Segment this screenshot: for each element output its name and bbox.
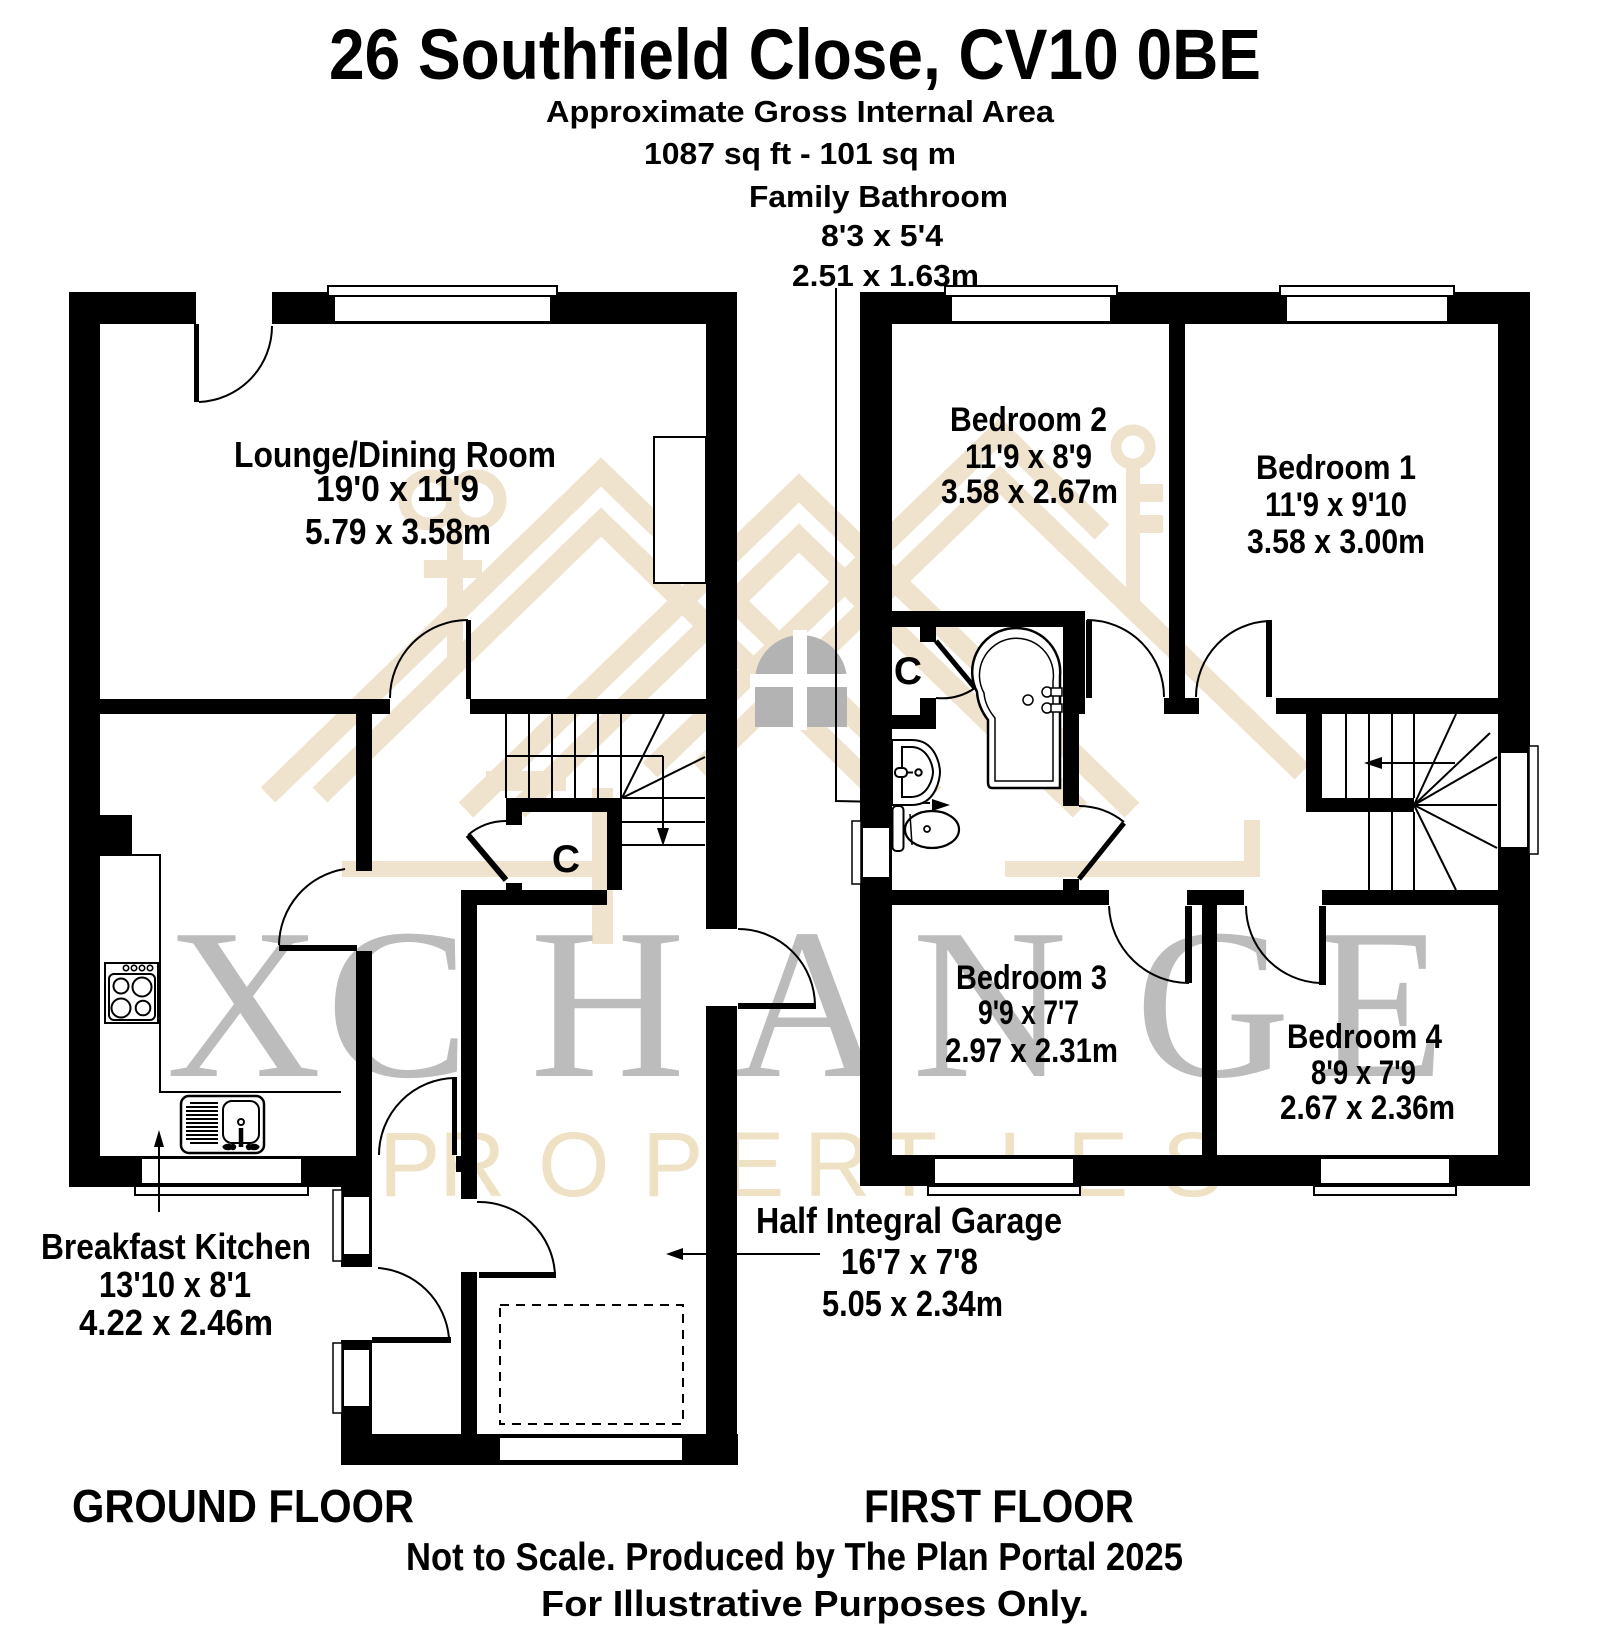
svg-text:H: H (530, 884, 685, 1123)
svg-text:2.51 x 1.63m: 2.51 x 1.63m (792, 258, 979, 293)
svg-text:GROUND FLOOR: GROUND FLOOR (72, 1480, 414, 1532)
svg-text:3.58 x 3.00m: 3.58 x 3.00m (1247, 523, 1425, 561)
svg-text:8'9 x 7'9: 8'9 x 7'9 (1311, 1054, 1416, 1092)
svg-text:19'0 x 11'9: 19'0 x 11'9 (316, 468, 479, 509)
svg-text:4.22 x 2.46m: 4.22 x 2.46m (79, 1302, 273, 1343)
svg-text:Half Integral Garage: Half Integral Garage (756, 1200, 1062, 1241)
svg-text:Bedroom 1: Bedroom 1 (1256, 449, 1416, 487)
svg-text:13'10 x 8'1: 13'10 x 8'1 (99, 1264, 251, 1305)
svg-text:X: X (166, 884, 321, 1123)
svg-text:Breakfast Kitchen: Breakfast Kitchen (41, 1226, 311, 1267)
svg-text:C: C (326, 884, 469, 1123)
svg-text:1087 sq ft - 101 sq m: 1087 sq ft - 101 sq m (644, 136, 956, 171)
svg-text:26 Southfield Close, CV10 0BE: 26 Southfield Close, CV10 0BE (329, 16, 1261, 95)
svg-text:Bedroom 2: Bedroom 2 (950, 401, 1107, 439)
svg-text:11'9 x 9'10: 11'9 x 9'10 (1265, 486, 1407, 524)
svg-text:Not to Scale. Produced by The: Not to Scale. Produced by The Plan Porta… (406, 1536, 1183, 1579)
svg-text:Approximate Gross Internal Are: Approximate Gross Internal Area (546, 94, 1055, 129)
svg-text:8'3 x 5'4: 8'3 x 5'4 (821, 218, 944, 253)
svg-text:C: C (552, 838, 580, 881)
svg-text:O: O (538, 1114, 610, 1216)
svg-text:P: P (642, 1114, 703, 1216)
svg-text:16'7 x 7'8: 16'7 x 7'8 (841, 1241, 978, 1282)
svg-text:Bedroom 4: Bedroom 4 (1287, 1018, 1442, 1056)
svg-text:5.05 x 2.34m: 5.05 x 2.34m (822, 1283, 1003, 1324)
svg-text:FIRST FLOOR: FIRST FLOOR (864, 1480, 1134, 1532)
svg-text:5.79 x 3.58m: 5.79 x 3.58m (305, 511, 491, 552)
svg-text:C: C (894, 650, 922, 693)
svg-text:11'9 x 8'9: 11'9 x 8'9 (965, 438, 1092, 476)
svg-text:Bedroom 3: Bedroom 3 (956, 959, 1107, 997)
svg-text:2.67 x 2.36m: 2.67 x 2.36m (1280, 1089, 1455, 1127)
svg-text:3.58 x 2.67m: 3.58 x 2.67m (941, 473, 1118, 511)
svg-text:Family Bathroom: Family Bathroom (749, 179, 1008, 214)
svg-text:9'9 x 7'7: 9'9 x 7'7 (978, 994, 1079, 1032)
svg-text:P: P (379, 1114, 440, 1216)
svg-text:For Illustrative Purposes Only: For Illustrative Purposes Only. (541, 1583, 1089, 1624)
svg-text:2.97 x 2.31m: 2.97 x 2.31m (945, 1032, 1118, 1070)
